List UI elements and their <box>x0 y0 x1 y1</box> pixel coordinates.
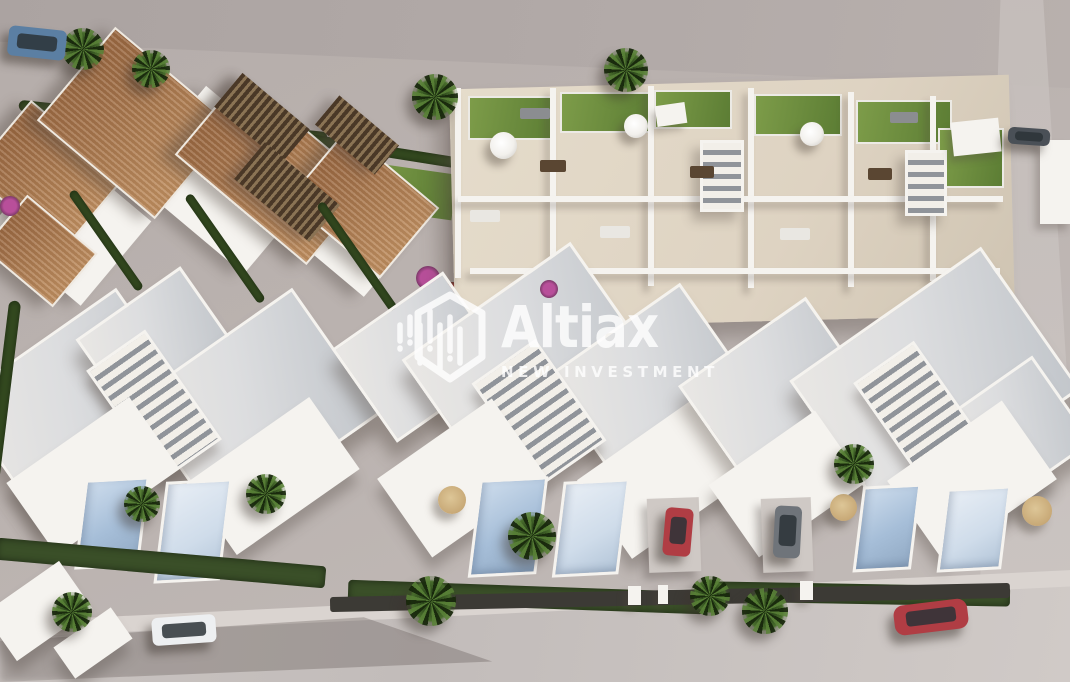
private-pool <box>552 478 630 577</box>
development-aerial-render: Altiax NEW INVESTMENT <box>0 0 1070 682</box>
palm-tree <box>412 74 458 120</box>
dark-car-side-street <box>1007 127 1050 147</box>
palm-tree <box>508 512 556 560</box>
palm-tree <box>124 486 160 522</box>
private-pool <box>937 485 1012 572</box>
terrace-wall <box>748 88 754 288</box>
watermark: Altiax NEW INVESTMENT <box>394 288 719 386</box>
palm-tree <box>742 588 788 634</box>
watermark-text: Altiax NEW INVESTMENT <box>501 298 719 381</box>
terrace-wall <box>648 86 654 286</box>
car-windshield <box>1014 131 1043 141</box>
palm-tree <box>834 444 874 484</box>
car-windshield <box>669 516 688 545</box>
brand-name: Altiax <box>501 298 688 356</box>
red-car-driveway <box>662 507 694 557</box>
gray-car-driveway <box>773 505 803 558</box>
sun-lounger <box>520 108 550 119</box>
car-windshield <box>779 515 797 546</box>
palm-tree <box>246 474 286 514</box>
outdoor-sofa <box>600 226 630 238</box>
outdoor-sofa <box>780 228 810 240</box>
terrace-wall <box>455 88 461 278</box>
car-windshield <box>17 33 58 52</box>
palm-tree <box>690 576 730 616</box>
dining-table <box>690 166 714 178</box>
palm-tree <box>52 592 92 632</box>
shade-sail <box>950 118 1001 157</box>
terrace-wall <box>848 92 854 287</box>
dining-table <box>868 168 892 180</box>
flowering-shrub <box>0 196 20 216</box>
straw-umbrella <box>830 494 857 521</box>
outdoor-sofa <box>470 210 500 222</box>
driveway-entrance <box>800 581 813 600</box>
palm-tree <box>62 28 104 70</box>
palm-tree <box>604 48 648 92</box>
palm-tree <box>132 50 170 88</box>
sun-lounger <box>890 112 918 123</box>
driveway-entrance <box>628 586 641 605</box>
car-windshield <box>162 621 206 638</box>
private-pool <box>852 484 921 573</box>
straw-umbrella <box>438 486 466 514</box>
neighbor-building <box>1040 140 1070 224</box>
white-umbrella <box>624 114 648 138</box>
shade-sail <box>655 102 688 127</box>
white-umbrella <box>490 132 517 159</box>
dining-table <box>540 160 566 172</box>
white-car-road <box>151 614 217 646</box>
roof-lawn <box>754 94 842 136</box>
blue-suv-top-left <box>7 25 68 61</box>
hexagon-equalizer-icon <box>394 288 486 386</box>
straw-umbrella <box>1022 496 1052 526</box>
palm-tree <box>406 576 456 626</box>
brand-tagline: NEW INVESTMENT <box>501 363 719 381</box>
white-umbrella <box>800 122 824 146</box>
stairwell <box>905 150 947 216</box>
car-windshield <box>905 606 957 627</box>
driveway-entrance <box>658 585 668 604</box>
